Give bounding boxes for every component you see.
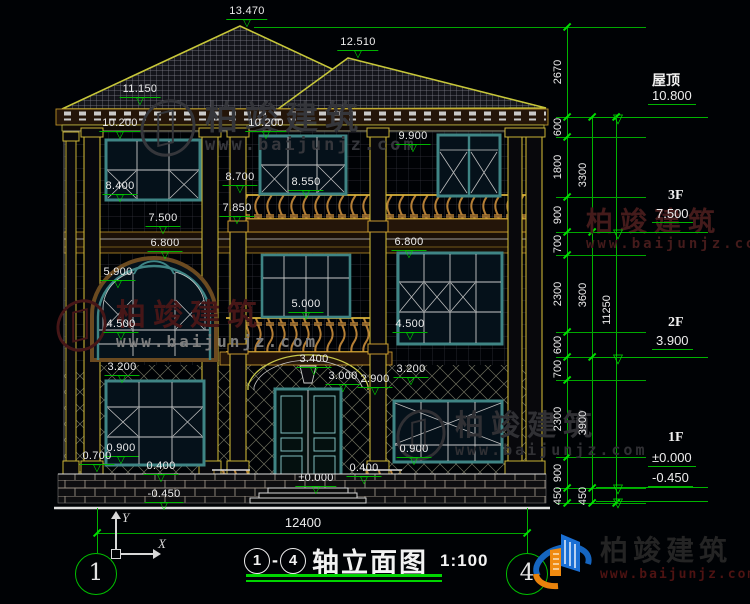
floor-elevation-value: 3.900	[652, 333, 693, 350]
elevation-triangle-icon: ▽	[93, 465, 101, 473]
elevation-triangle-icon: ▽	[160, 503, 168, 511]
elevation-mark: 12.510▽	[337, 36, 378, 59]
dim-chain-value: 2300	[552, 281, 564, 305]
elevation-mark: -0.450▽	[145, 488, 184, 511]
floor-name-label: 3F	[668, 188, 684, 204]
level-extension-line	[556, 332, 646, 333]
elevation-mark: 10.200▽	[245, 117, 286, 140]
elevation-mark: 11.150▽	[120, 83, 161, 106]
elevation-mark: 3.000▽	[325, 370, 360, 393]
ucs-y-arrow	[111, 511, 121, 519]
elevation-triangle-icon: ▽	[410, 458, 418, 466]
floor-elevation-value: 7.500	[652, 206, 693, 223]
elevation-mark: 8.400▽	[102, 180, 137, 203]
dim-chain-value: 1800	[552, 155, 564, 179]
elevation-mark: 7.500▽	[145, 212, 180, 235]
floor-level-triangle-icon: ▽	[613, 484, 623, 494]
bottom-dim-value: 12400	[285, 515, 321, 530]
elevation-mark: 4.500▽	[103, 318, 138, 341]
elevation-mark: 7.850▽	[219, 202, 254, 225]
level-extension-line	[556, 27, 646, 28]
ucs-icon: Y X	[100, 508, 170, 563]
elevation-mark: 3.200▽	[104, 361, 139, 384]
dim-chain-line	[567, 27, 568, 503]
elevation-mark: 8.550▽	[288, 176, 323, 199]
brand-logo-mark	[528, 524, 594, 594]
elevation-triangle-icon: ▽	[406, 333, 414, 341]
dim-chain-line	[592, 117, 593, 503]
dim-chain-value: 900	[552, 205, 564, 223]
elevation-triangle-icon: ▽	[117, 333, 125, 341]
elevation-triangle-icon: ▽	[407, 378, 415, 386]
elevation-triangle-icon: ▽	[302, 313, 310, 321]
floor-name-label: 屋顶	[652, 70, 680, 90]
ucs-y-label: Y	[122, 510, 129, 526]
dim-chain-value: 600	[552, 118, 564, 136]
ucs-origin-box	[111, 549, 121, 559]
dim-chain-value: 3600	[577, 282, 589, 306]
dim-chain-value: 700	[552, 234, 564, 252]
dim-chain-value: 700	[552, 359, 564, 377]
elevation-mark: 8.700▽	[222, 171, 257, 194]
dim-chain-value: 3300	[577, 162, 589, 186]
floor-elevation-value: 10.800	[648, 88, 696, 105]
floor-level-triangle-icon: ▽	[613, 498, 623, 508]
floor-name-label: 2F	[668, 315, 684, 331]
brand-logo: 柏竣建筑 www.baijunjz.com	[528, 524, 750, 594]
elevation-triangle-icon: ▽	[339, 385, 347, 393]
elevation-mark: 2.900▽	[357, 373, 392, 396]
elevation-triangle-icon: ▽	[117, 457, 125, 465]
elevation-triangle-icon: ▽	[360, 477, 368, 485]
dim-chain-value: 3900	[577, 410, 589, 434]
brand-url: www.baijunjz.com	[600, 567, 750, 582]
elevation-triangle-icon: ▽	[243, 20, 251, 28]
elevation-mark: ±0.000▽	[295, 472, 336, 495]
level-extension-line	[556, 503, 646, 504]
elevation-triangle-icon: ▽	[157, 475, 165, 483]
elevation-mark: 0.400▽	[346, 462, 381, 485]
axis-bubble: 1	[75, 553, 117, 595]
elevation-triangle-icon: ▽	[371, 388, 379, 396]
dim-chain-value: 450	[552, 486, 564, 504]
dim-chain-value: 2300	[552, 406, 564, 430]
elevation-mark: 0.400▽	[143, 460, 178, 483]
floor-elevation-value: -0.450	[648, 470, 693, 487]
elevation-triangle-icon: ▽	[405, 251, 413, 259]
elevation-triangle-icon: ▽	[302, 191, 310, 199]
elevation-triangle-icon: ▽	[116, 132, 124, 140]
level-extension-line	[556, 255, 646, 256]
elevation-triangle-icon: ▽	[236, 186, 244, 194]
dim-chain-value: 600	[552, 335, 564, 353]
floor-level-triangle-icon: ▽	[613, 354, 623, 364]
elevation-triangle-icon: ▽	[118, 376, 126, 384]
level-extension-line	[556, 457, 646, 458]
title-axis-separator: -	[272, 550, 278, 571]
balcony-3f	[236, 195, 542, 232]
dim-chain-value: 11250	[601, 295, 613, 325]
elevation-triangle-icon: ▽	[310, 368, 318, 376]
dim-chain-value: 450	[577, 486, 589, 504]
elevation-triangle-icon: ▽	[262, 132, 270, 140]
elevation-mark: 0.700▽	[79, 450, 114, 473]
elevation-triangle-icon: ▽	[312, 487, 320, 495]
title-axis-from-bubble: 1	[244, 548, 270, 574]
dim-chain-line	[616, 117, 617, 503]
elevation-triangle-icon: ▽	[116, 195, 124, 203]
elevation-mark: 6.800▽	[147, 237, 182, 260]
elevation-mark: 5.900▽	[100, 266, 135, 289]
ucs-x-label: X	[158, 536, 166, 552]
floor-name-label: 1F	[668, 430, 684, 446]
elevation-triangle-icon: ▽	[409, 145, 417, 153]
elevation-triangle-icon: ▽	[136, 98, 144, 106]
title-axis-to-bubble: 4	[280, 548, 306, 574]
floor-elevation-value: ±0.000	[648, 450, 696, 467]
elevation-triangle-icon: ▽	[159, 227, 167, 235]
elevation-mark: 3.200▽	[393, 363, 428, 386]
ucs-x-axis	[115, 553, 155, 555]
elevation-triangle-icon: ▽	[114, 281, 122, 289]
elevation-mark: 13.470▽	[226, 5, 267, 28]
elevation-triangle-icon: ▽	[354, 51, 362, 59]
elevation-triangle-icon: ▽	[161, 252, 169, 260]
elevation-triangle-icon: ▽	[233, 217, 241, 225]
floor-level-triangle-icon: ▽	[613, 114, 623, 124]
title-scale: 1:100	[440, 551, 488, 571]
elevation-mark: 4.500▽	[392, 318, 427, 341]
elevation-mark: 10.200▽	[99, 117, 140, 140]
elevation-mark: 9.900▽	[395, 130, 430, 153]
level-extension-line	[556, 380, 646, 381]
elevation-mark: 5.000▽	[288, 298, 323, 321]
brand-name: 柏竣建筑	[600, 536, 750, 565]
dim-chain-value: 2670	[552, 60, 564, 84]
apex-extension-line	[254, 27, 556, 28]
level-extension-line	[556, 137, 646, 138]
level-extension-line	[556, 197, 646, 198]
cad-elevation-view: 1 - 4 轴立面图 1:100 Y X 柏竣建筑 www.baijunjz.c…	[0, 0, 750, 604]
elevation-mark: 0.900▽	[396, 443, 431, 466]
title-underline-top	[246, 574, 442, 577]
dim-chain-value: 900	[552, 463, 564, 481]
title-underline-bottom	[246, 580, 442, 582]
floor-level-triangle-icon: ▽	[613, 229, 623, 239]
window-3f-right	[438, 135, 500, 196]
floor-band-3f	[64, 232, 542, 253]
elevation-mark: 6.800▽	[391, 236, 426, 259]
